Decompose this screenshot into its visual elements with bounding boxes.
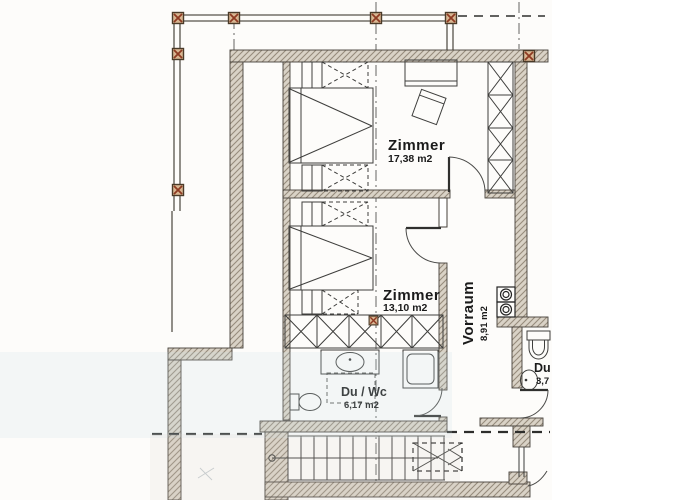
scan-margin-right bbox=[552, 0, 700, 500]
post-icon bbox=[173, 13, 184, 24]
floor-plan-page: Zimmer 17,38 m2 Zimm bbox=[0, 0, 700, 500]
post-icon bbox=[371, 13, 382, 24]
post-icon-small bbox=[369, 316, 378, 325]
wall-stair-top-right bbox=[480, 418, 543, 426]
zimmer-1-label: Zimmer bbox=[388, 137, 445, 154]
vorraum-area-label: 8,91 m2 bbox=[479, 306, 490, 341]
zimmer-1-area-label: 17,38 m2 bbox=[388, 153, 433, 165]
zimmer-2-area-label: 13,10 m2 bbox=[383, 302, 428, 314]
post-icon bbox=[229, 13, 240, 24]
post-icon bbox=[446, 13, 457, 24]
du-right-label: Du bbox=[534, 361, 551, 375]
post-icon bbox=[524, 51, 535, 62]
wall-outer-right bbox=[515, 62, 527, 317]
post-icon bbox=[173, 49, 184, 60]
du-right-area-label: 3,7 bbox=[536, 376, 549, 387]
wall-outer-left bbox=[230, 62, 243, 348]
wall-bath-right-top bbox=[497, 317, 548, 327]
post-icon bbox=[173, 185, 184, 196]
wall-pillar bbox=[513, 426, 530, 447]
wall-top bbox=[230, 50, 548, 62]
wall-vorraum-stub bbox=[439, 198, 447, 227]
vorraum-label: Vorraum bbox=[460, 281, 477, 345]
floor-plan-canvas: Zimmer 17,38 m2 Zimm bbox=[0, 0, 700, 500]
